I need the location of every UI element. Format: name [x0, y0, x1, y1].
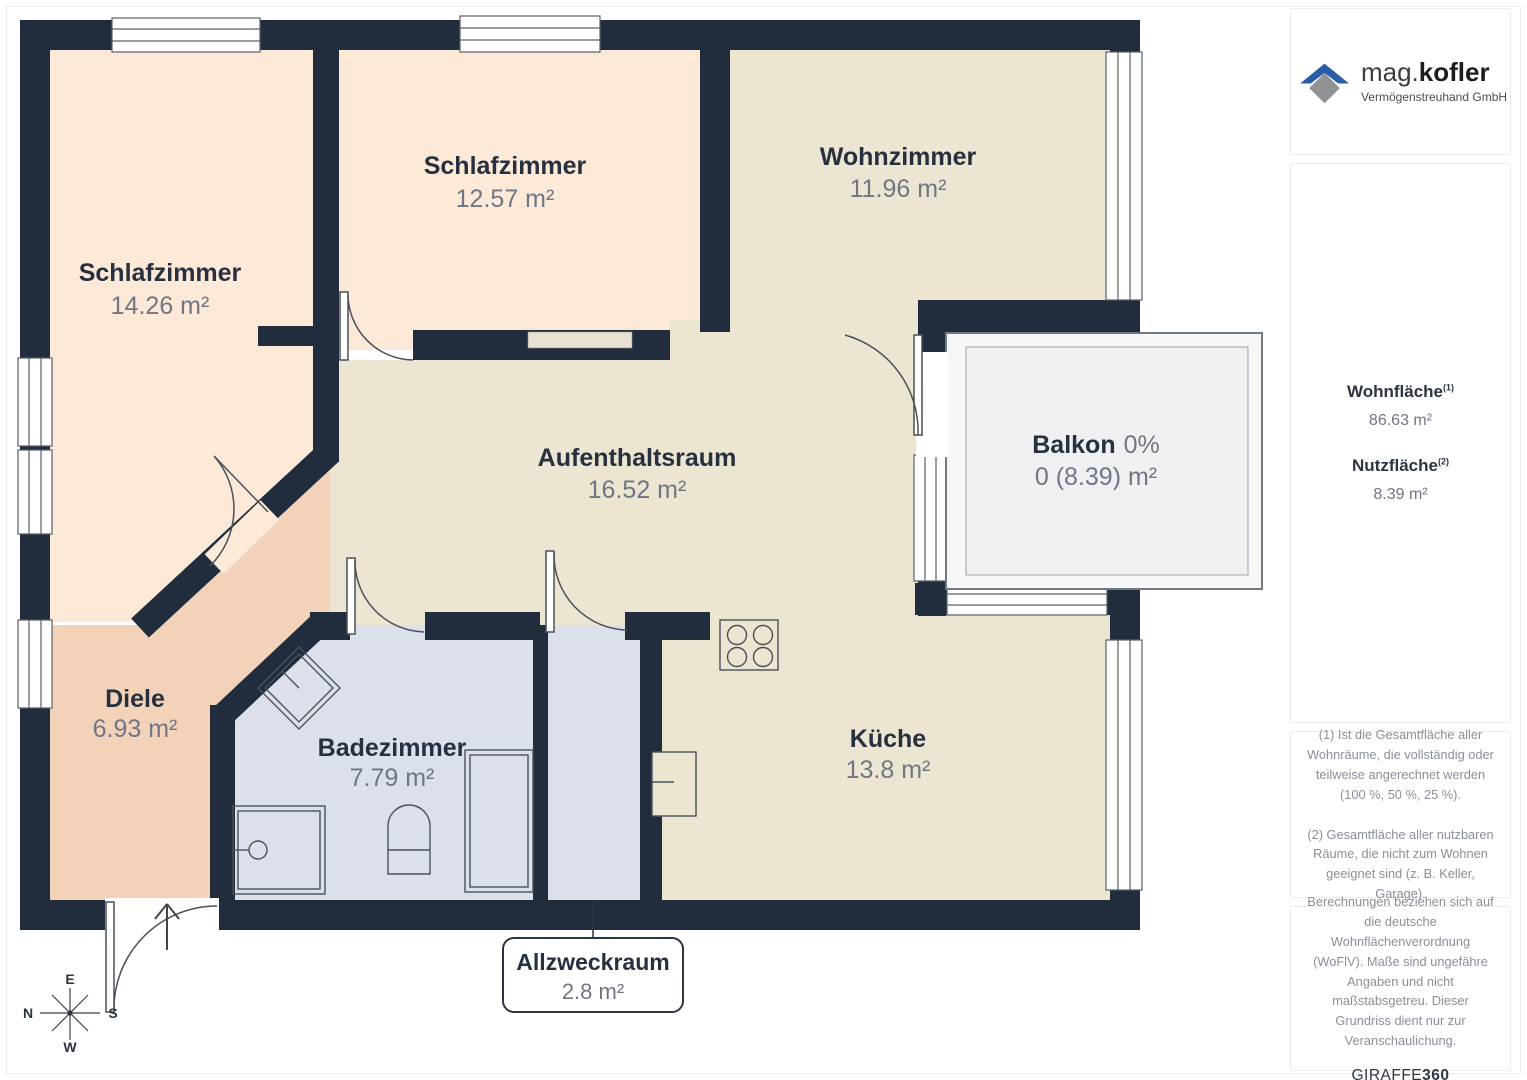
window-top-2	[460, 16, 600, 52]
compass-left: N	[23, 1005, 33, 1021]
area-aufenthaltsraum: 16.52 m²	[588, 476, 687, 504]
area-allzweckraum: 2.8 m²	[562, 979, 624, 1004]
logo-text: mag.kofler Vermögenstreuhand GmbH	[1361, 59, 1507, 103]
window-right-wohnzimmer	[1106, 52, 1142, 300]
metric-wohnflaeche: Wohnfläche(1) 86.63 m²	[1347, 382, 1454, 430]
compass-top: E	[65, 971, 74, 987]
door-entrance	[105, 898, 219, 1012]
area-balkon: 0 (8.39) m²	[1035, 463, 1157, 491]
label-badezimmer: Badezimmer	[318, 734, 467, 762]
fridge	[652, 752, 696, 816]
brand-name: mag.kofler	[1361, 59, 1507, 86]
metrics-card: Wohnfläche(1) 86.63 m² Nutzfläche(2) 8.3…	[1290, 163, 1511, 723]
disclaimer-card: Berechnungen beziehen sich auf die deuts…	[1290, 906, 1511, 1071]
compass-icon: E N S W	[23, 971, 118, 1055]
logo-mark-icon	[1294, 51, 1352, 113]
label-allzweckraum: Allzweckraum	[516, 949, 669, 975]
floorplan-drawing: E N S W Schlafzimmer 14.26 m² Schlafzimm…	[0, 0, 1285, 1080]
brand-subtitle: Vermögenstreuhand GmbH	[1361, 90, 1507, 104]
area-wohnzimmer: 11.96 m²	[850, 175, 947, 203]
room-allzweckraum	[548, 625, 640, 902]
giraffe360-logo: GIRAFFE360	[1351, 1067, 1449, 1080]
label-aufenthaltsraum: Aufenthaltsraum	[538, 444, 737, 472]
window-left-3	[18, 620, 52, 708]
compass-right: S	[108, 1005, 117, 1021]
wohnflaeche-value: 86.63 m²	[1347, 412, 1454, 430]
label-diele: Diele	[105, 685, 165, 713]
logo-card: mag.kofler Vermögenstreuhand GmbH	[1290, 8, 1511, 155]
window-right-kueche	[1106, 640, 1142, 890]
footnotes-card: (1) Ist die Gesamtfläche aller Wohnräume…	[1290, 731, 1511, 898]
window-balcony-side	[914, 455, 946, 581]
area-schlafzimmer-1: 14.26 m²	[111, 292, 210, 320]
area-diele: 6.93 m²	[93, 715, 178, 743]
compass-bottom: W	[63, 1039, 77, 1055]
footnote-1: (1) Ist die Gesamtfläche aller Wohnräume…	[1307, 725, 1494, 804]
area-badezimmer: 7.79 m²	[350, 764, 435, 792]
label-balkon: Balkon0%	[1032, 431, 1160, 459]
window-top-1	[112, 18, 260, 52]
area-kueche: 13.8 m²	[846, 756, 931, 784]
metric-nutzflaeche: Nutzfläche(2) 8.39 m²	[1352, 456, 1449, 504]
label-schlafzimmer-2: Schlafzimmer	[424, 152, 587, 180]
stove	[720, 620, 778, 670]
window-left-1	[18, 358, 52, 446]
label-wohnzimmer: Wohnzimmer	[820, 143, 977, 171]
nutzflaeche-value: 8.39 m²	[1352, 486, 1449, 504]
label-kueche: Küche	[850, 725, 927, 753]
balcony	[946, 333, 1262, 589]
disclaimer-text: Berechnungen beziehen sich auf die deuts…	[1307, 892, 1494, 1051]
wall-inset	[528, 332, 632, 348]
area-schlafzimmer-2: 12.57 m²	[456, 185, 555, 213]
label-schlafzimmer-1: Schlafzimmer	[79, 259, 242, 287]
floorplan-page: E N S W Schlafzimmer 14.26 m² Schlafzimm…	[0, 0, 1527, 1080]
window-left-2	[18, 450, 52, 534]
